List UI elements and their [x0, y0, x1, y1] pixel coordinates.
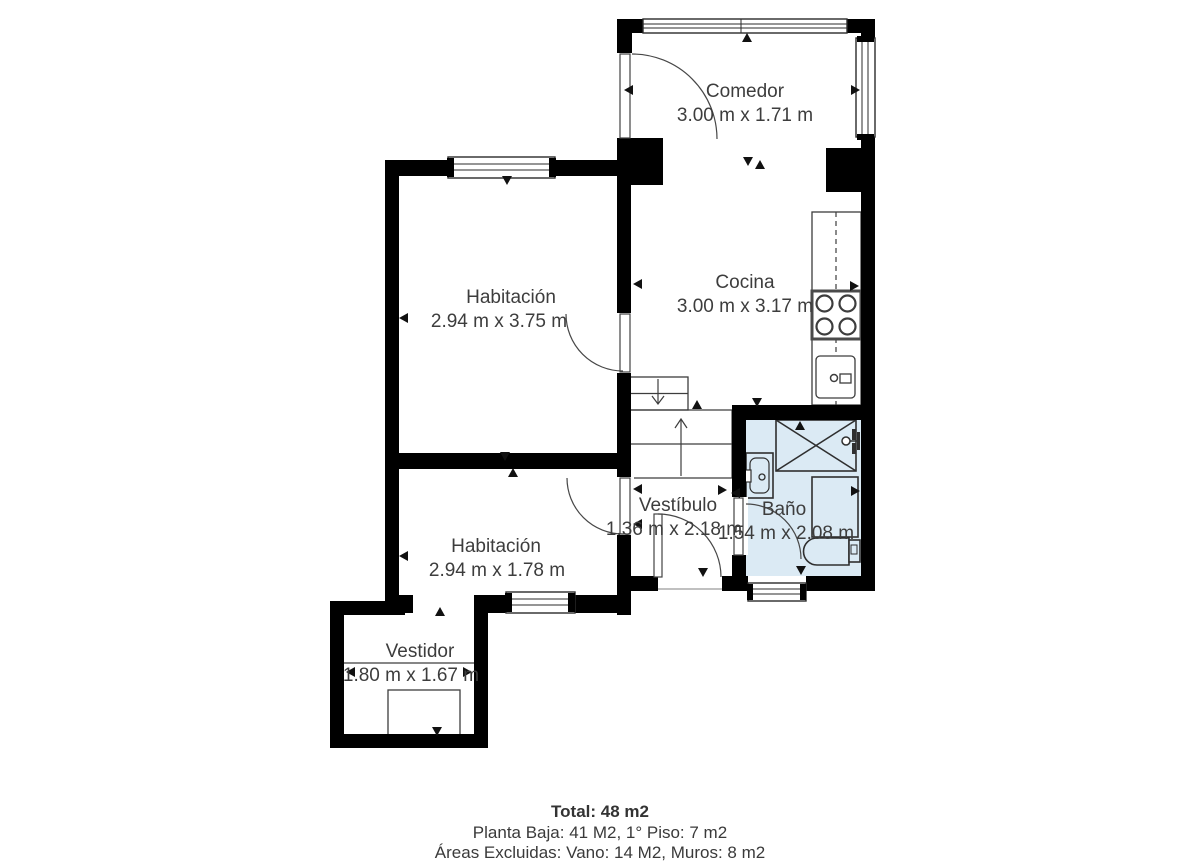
bathroom-sink: [743, 453, 773, 498]
room-dims-habitacion-2: 2.94 m x 1.78 m: [429, 560, 565, 581]
window-comedor-top: [643, 19, 847, 33]
room-dims-comedor: 3.00 m x 1.71 m: [677, 105, 813, 126]
door-comedor: [615, 53, 717, 139]
window-comedor-right: [856, 36, 875, 140]
summary-total: Total: 48 m2: [551, 802, 649, 821]
window-habitacion-bottom: [505, 592, 575, 613]
floor-plan: Comedor 3.00 m x 1.71 m Cocina 3.00 m x …: [0, 0, 1200, 866]
stairs-up: [631, 410, 732, 478]
room-label-habitacion-2: Habitación: [451, 536, 541, 557]
room-label-habitacion-1: Habitación: [466, 287, 556, 308]
room-label-comedor: Comedor: [706, 81, 785, 102]
summary-floors: Planta Baja: 41 M2, 1° Piso: 7 m2: [473, 823, 727, 842]
room-dims-habitacion-1: 2.94 m x 3.75 m: [431, 311, 567, 332]
shower: [776, 420, 856, 471]
stairs-down: [628, 377, 688, 410]
kitchen-sink: [816, 356, 855, 398]
window-bano-bottom: [747, 583, 806, 601]
room-label-cocina: Cocina: [715, 272, 775, 293]
window-habitacion-top: [447, 157, 556, 178]
walls: [330, 19, 875, 748]
room-label-vestidor: Vestidor: [386, 641, 455, 662]
room-label-vestibulo: Vestíbulo: [639, 495, 717, 516]
room-dims-vestidor: 1.80 m x 1.67 m: [343, 665, 479, 686]
room-label-bano: Baño: [762, 499, 806, 520]
summary-excluded: Áreas Excluidas: Vano: 14 M2, Muros: 8 m…: [435, 843, 765, 862]
dimension-markers: [346, 33, 860, 736]
room-dims-bano: 1.54 m x 2.08 m: [718, 523, 854, 544]
room-dims-cocina: 3.00 m x 3.17 m: [677, 296, 813, 317]
stove: [812, 291, 861, 339]
door-habitacion-1: [566, 313, 634, 373]
